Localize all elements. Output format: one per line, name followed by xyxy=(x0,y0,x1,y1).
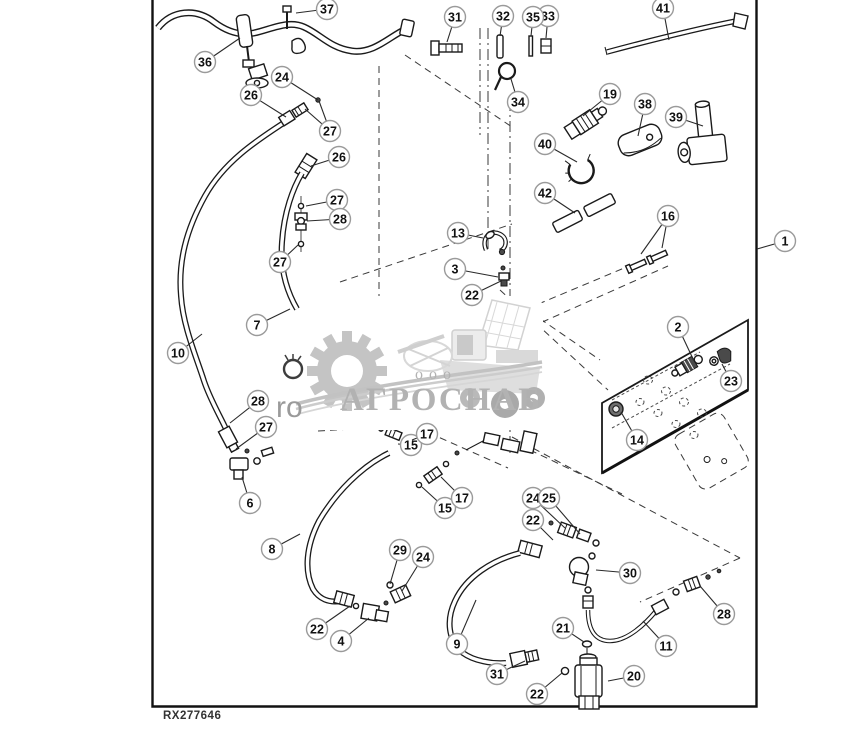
svg-text:29: 29 xyxy=(393,544,407,558)
tube-42 xyxy=(552,193,616,233)
callout-20: 20 xyxy=(608,666,645,687)
svg-text:2: 2 xyxy=(675,321,682,335)
svg-text:30: 30 xyxy=(623,567,637,581)
fitting-19 xyxy=(564,102,610,140)
svg-text:36: 36 xyxy=(198,56,212,70)
callout-26: 26 xyxy=(311,147,350,168)
svg-text:39: 39 xyxy=(669,111,683,125)
svg-text:24: 24 xyxy=(275,71,289,85)
callout-8: 8 xyxy=(262,534,301,560)
svg-text:13: 13 xyxy=(451,227,465,241)
svg-text:37: 37 xyxy=(320,3,334,17)
callout-11: 11 xyxy=(643,621,677,657)
callout-15: 15 xyxy=(422,487,456,519)
hose-9 xyxy=(450,540,569,674)
callout-32: 32 xyxy=(493,6,514,37)
svg-text:28: 28 xyxy=(251,395,265,409)
svg-text:38: 38 xyxy=(638,98,652,112)
figure-code: RX277646 xyxy=(163,710,221,722)
svg-text:17: 17 xyxy=(455,492,469,506)
svg-text:4: 4 xyxy=(338,635,345,649)
blade-41 xyxy=(605,13,748,55)
svg-text:22: 22 xyxy=(530,688,544,702)
svg-text:20: 20 xyxy=(627,670,641,684)
svg-text:31: 31 xyxy=(448,11,462,25)
watermark-company: АГРОСНАБ xyxy=(340,382,542,418)
elbow-30 xyxy=(570,553,596,585)
svg-text:27: 27 xyxy=(323,125,337,139)
callout-29: 29 xyxy=(390,540,411,585)
svg-text:42: 42 xyxy=(538,187,552,201)
junction-cluster xyxy=(379,427,537,488)
callout-37: 37 xyxy=(296,0,338,20)
svg-text:1: 1 xyxy=(782,235,789,249)
svg-text:28: 28 xyxy=(333,213,347,227)
svg-text:27: 27 xyxy=(273,256,287,270)
svg-text:41: 41 xyxy=(656,2,670,16)
fitting-chain-top xyxy=(279,98,321,126)
clamp-40 xyxy=(562,154,597,187)
svg-text:25: 25 xyxy=(542,492,556,506)
svg-text:35: 35 xyxy=(526,11,540,25)
watermark-prefix: ооо xyxy=(415,366,457,383)
svg-text:27: 27 xyxy=(330,194,344,208)
svg-text:22: 22 xyxy=(465,289,479,303)
svg-text:21: 21 xyxy=(556,622,570,636)
svg-text:31: 31 xyxy=(490,668,504,682)
fitting-3-22 xyxy=(499,266,509,286)
callout-28: 28 xyxy=(700,586,735,625)
fastener-group xyxy=(431,35,551,90)
callout-34: 34 xyxy=(508,79,529,113)
svg-text:23: 23 xyxy=(724,375,738,389)
svg-text:16: 16 xyxy=(661,210,675,224)
svg-text:27: 27 xyxy=(259,421,273,435)
callout-16: 16 xyxy=(641,206,679,255)
callout-36: 36 xyxy=(195,38,241,73)
svg-text:24: 24 xyxy=(416,551,430,565)
callout-22: 22 xyxy=(462,281,502,306)
svg-text:15: 15 xyxy=(438,502,452,516)
callout-24: 24 xyxy=(272,67,319,101)
callout-42: 42 xyxy=(535,183,576,214)
svg-text:9: 9 xyxy=(454,638,461,652)
svg-text:6: 6 xyxy=(247,497,254,511)
hose-7 xyxy=(282,153,317,309)
mounting-plate xyxy=(602,320,748,473)
callout-27: 27 xyxy=(306,190,348,211)
svg-text:28: 28 xyxy=(717,608,731,622)
filter-20 xyxy=(575,641,602,709)
watermark: ооо АГРОСНАБ ro xyxy=(276,296,545,430)
spring-clamp-ring xyxy=(284,354,302,378)
watermark-fragment: ro xyxy=(276,391,303,424)
callout-22: 22 xyxy=(523,510,554,541)
callout-6: 6 xyxy=(240,477,261,514)
svg-text:26: 26 xyxy=(244,89,258,103)
svg-text:10: 10 xyxy=(171,347,185,361)
svg-text:15: 15 xyxy=(404,439,418,453)
callout-35: 35 xyxy=(523,7,544,37)
callout-27: 27 xyxy=(236,417,277,450)
svg-text:3: 3 xyxy=(452,263,459,277)
callout-21: 21 xyxy=(553,618,585,643)
callout-31: 31 xyxy=(445,7,466,43)
svg-text:17: 17 xyxy=(420,428,434,442)
svg-text:11: 11 xyxy=(659,640,672,654)
hose-8 xyxy=(307,453,410,623)
svg-text:26: 26 xyxy=(332,151,346,165)
callout-13: 13 xyxy=(448,223,484,244)
svg-text:32: 32 xyxy=(496,10,510,24)
svg-text:40: 40 xyxy=(538,138,552,152)
callout-22: 22 xyxy=(527,673,563,705)
svg-text:8: 8 xyxy=(269,543,276,557)
svg-text:19: 19 xyxy=(603,88,617,102)
callout-3: 3 xyxy=(445,259,499,280)
callout-1: 1 xyxy=(757,231,796,252)
parts-diagram-page: ооо АГРОСНАБ ro 123467891011131415151617… xyxy=(0,0,841,731)
svg-text:22: 22 xyxy=(310,623,324,637)
callout-30: 30 xyxy=(596,563,641,584)
svg-text:14: 14 xyxy=(630,434,644,448)
svg-text:22: 22 xyxy=(526,514,540,528)
pins-16 xyxy=(626,249,669,273)
svg-text:34: 34 xyxy=(511,96,525,110)
callout-28: 28 xyxy=(307,209,351,230)
svg-text:7: 7 xyxy=(254,319,261,333)
callout-26: 26 xyxy=(241,85,287,118)
callout-7: 7 xyxy=(247,309,291,336)
exploded-parts-diagram: ооо АГРОСНАБ ro 123467891011131415151617… xyxy=(0,0,841,731)
callout-4: 4 xyxy=(331,618,370,652)
callout-27: 27 xyxy=(305,101,341,142)
